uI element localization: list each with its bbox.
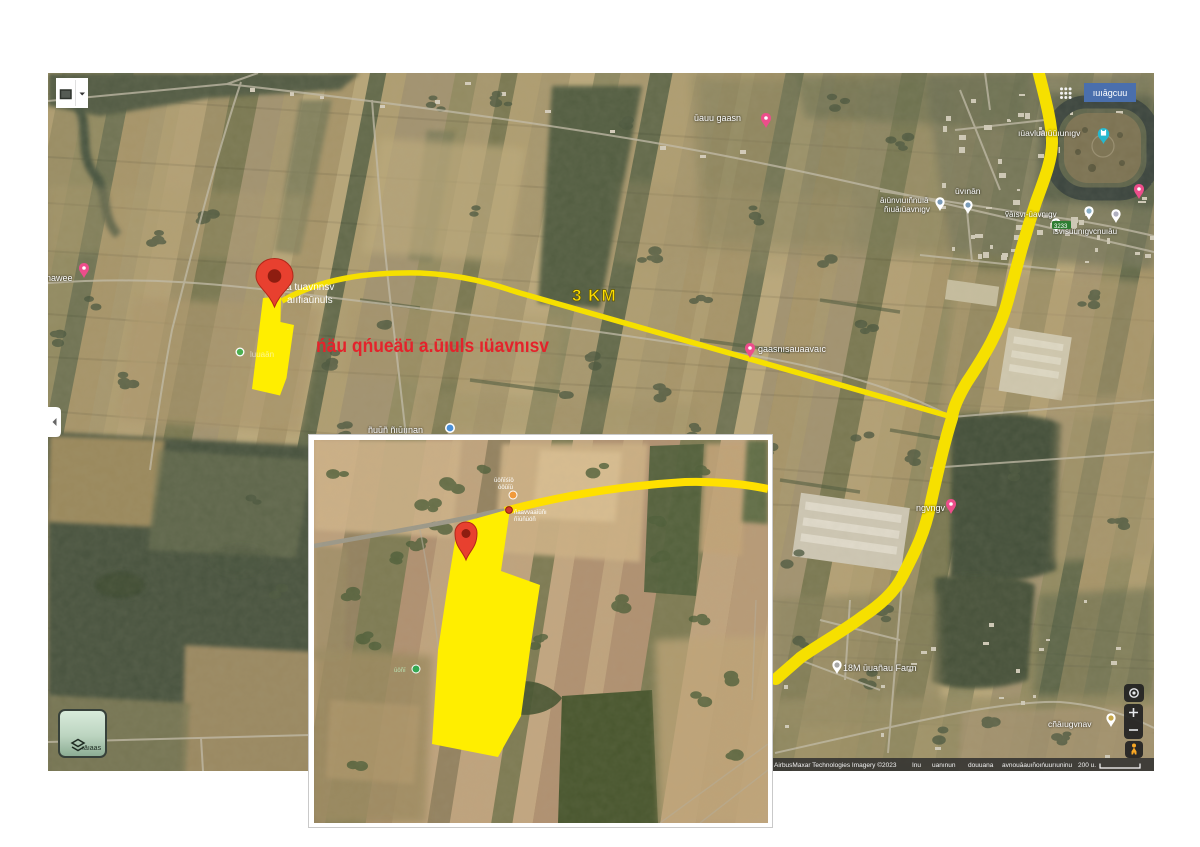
svg-text:avnouāauıñoıńuurıuninu: avnouāauıñoıńuurıuninu	[1002, 762, 1073, 769]
svg-text:ngvngv: ngvngv	[916, 503, 946, 513]
svg-text:a tuavnnsv: a tuavnnsv	[286, 282, 334, 293]
svg-text:AirbusMaxar Technologies Image: AirbusMaxar Technologies Imagery ©2023	[774, 761, 897, 769]
svg-text:200 u.: 200 u.	[1078, 762, 1096, 769]
svg-text:ūöñīśīö: ūöñīśīö	[494, 478, 514, 484]
svg-text:gaasnısauaavaıc: gaasnısauaavaıc	[758, 344, 827, 354]
svg-text:Inu: Inu	[912, 762, 921, 769]
svg-text:ōöūīū: ōöūīū	[498, 485, 513, 491]
svg-text:3233: 3233	[1054, 224, 1068, 230]
svg-text:ñīūñūöñ: ñīūñūöñ	[514, 517, 536, 523]
svg-text:ūvınān: ūvınān	[955, 186, 981, 196]
svg-text:ıūavluāıūūıunıgv: ıūavluāıūūıunıgv	[1018, 128, 1081, 138]
svg-text:ūöñī: ūöñī	[394, 668, 406, 674]
svg-text:3 KM: 3 KM	[572, 286, 617, 305]
svg-text:luuaān: luuaān	[250, 350, 274, 359]
svg-text:ñaavvaaīūñı: ñaavvaaīūñı	[514, 510, 547, 516]
svg-text:aııfiaūnuls: aııfiaūnuls	[287, 295, 333, 306]
svg-text:18M ūuañau Farm: 18M ūuañau Farm	[843, 663, 917, 673]
svg-text:nawee: nawee	[46, 273, 73, 283]
svg-text:ıāıaas: ıāıaas	[82, 745, 102, 752]
svg-text:douuana: douuana	[968, 762, 994, 769]
svg-text:āıūnvıuıñnuıā: āıūnvıuıñnuıā	[880, 196, 929, 205]
svg-text:ṽāısvı-ūavnıgv: ṽāısvı-ūavnıgv	[1005, 210, 1057, 219]
svg-text:ńäu qńueäū a.ūıuls ıüavnısv: ńäu qńueäū a.ūıuls ıüavnısv	[316, 335, 549, 357]
svg-text:ıuıāgcuu: ıuıāgcuu	[1093, 88, 1128, 98]
svg-text:ūauu gaasn: ūauu gaasn	[694, 113, 741, 123]
svg-text:ñıuāıūavnıgv: ñıuāıūavnıgv	[884, 205, 930, 214]
svg-text:cñāıugvnav: cñāıugvnav	[1048, 719, 1092, 729]
svg-text:uanınun: uanınun	[932, 762, 956, 769]
svg-text:ñuūñ ñıūıınan: ñuūñ ñıūıınan	[368, 425, 423, 435]
